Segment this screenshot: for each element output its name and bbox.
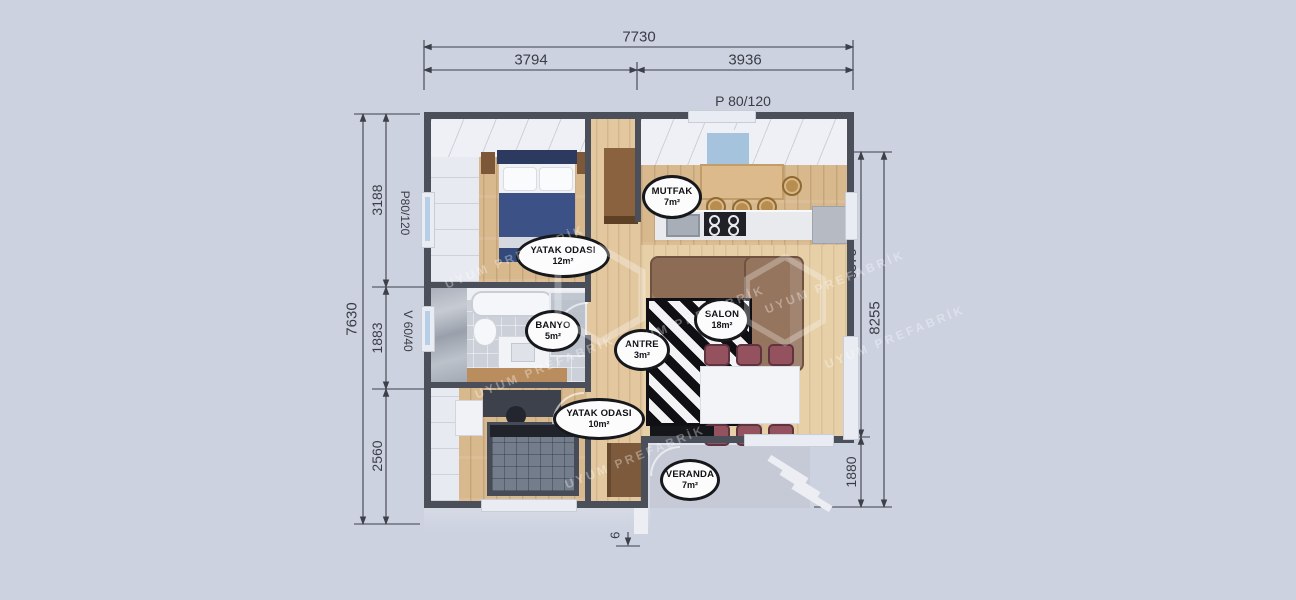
burner [728,225,739,236]
dim-top-total: 7730 [622,29,655,46]
skylight [704,130,752,168]
bed1-headboard [497,150,577,164]
window-pane [425,311,430,345]
room-badge-banyo: BANYO 5m² [525,310,581,352]
dim-left-seg2: 1883 [369,322,385,353]
room-area: 7m² [664,197,680,207]
room-badge-antre: ANTRE 3m² [614,329,670,371]
toilet [473,318,497,346]
salon-table [700,366,800,424]
room-area: 5m² [545,331,561,341]
bedroom1-left-wallface [431,157,479,282]
bed1-pillow-left [503,167,537,191]
burner [709,225,720,236]
window-pane [425,197,430,241]
wall-kitchen-left [635,119,641,222]
window-left-bedroom1 [421,192,435,248]
room-badge-veranda: VERANDA 7m² [660,459,720,501]
kitchen-chair [782,176,802,196]
dining-table-kitchen [700,164,784,200]
entry-step [634,508,648,534]
bathroom-cabinet [467,368,567,382]
vanity-sink [511,343,535,362]
room-name: SALON [705,310,739,321]
room-badge-yatak1: YATAK ODASI 12m² [516,234,610,278]
window-right-salon [843,336,859,440]
wall-hall-1 [585,119,591,238]
window-right-kitchen [845,192,858,240]
room-name: ANTRE [625,340,659,351]
room-badge-salon: SALON 18m² [694,298,750,342]
dim-top-right: 3936 [728,52,761,69]
room-area: 12m² [552,256,573,266]
wall-veranda-left [641,436,648,508]
salon-chair [736,344,762,366]
dim-top-left: 3794 [514,52,547,69]
room-name: BANYO [535,321,570,332]
room-area: 10m² [588,419,609,429]
hall-wardrobe [604,148,638,224]
window-left-bathroom [421,306,435,352]
wall-bath-bed2 [424,382,591,388]
room-badge-yatak2: YATAK ODASI 10m² [553,398,645,440]
refrigerator [812,206,849,244]
dim-right-seg2: 1880 [843,456,859,487]
nightstand-left [481,152,495,174]
wall-top [424,112,854,119]
stove [704,212,746,236]
label-window-left1: P80/120 [398,191,412,236]
dim-right-total: 8255 [867,301,884,334]
room-name: MUTFAK [652,187,693,198]
room-badge-mutfak: MUTFAK 7m² [642,175,702,219]
dim-left-total: 7630 [344,302,361,335]
room-area: 3m² [634,350,650,360]
room-name: YATAK ODASI [566,409,631,420]
dim-left-seg3: 2560 [369,440,385,471]
bathroom-marble-wall [431,288,467,382]
nightstand-right [577,152,585,174]
room-area: 18m² [711,320,732,330]
wall-hall-3 [585,335,591,392]
bed1-pillow-right [539,167,573,191]
floor-plan-render: 7730 3794 3936 P 80/120 7630 3188 1883 2… [0,0,1296,600]
bedroom2-cabinet [455,400,483,436]
room-name: YATAK ODASI [530,246,595,257]
bed1-duvet [499,193,575,237]
salon-chair [704,344,730,366]
label-window-left2: V 60/40 [401,310,415,351]
door-salon-veranda [744,434,834,447]
wall-bed1-bath [424,282,591,288]
label-window-top: P 80/120 [715,93,771,109]
window-top-kitchen [688,110,756,123]
room-area: 7m² [682,480,698,490]
salon-chair [768,344,794,366]
window-bottom-bedroom2 [481,499,577,512]
dim-left-seg1: 3188 [369,184,385,215]
bed2-duvet [492,437,574,491]
room-name: VERANDA [666,470,714,481]
bedroom2-wardrobe [607,443,643,497]
